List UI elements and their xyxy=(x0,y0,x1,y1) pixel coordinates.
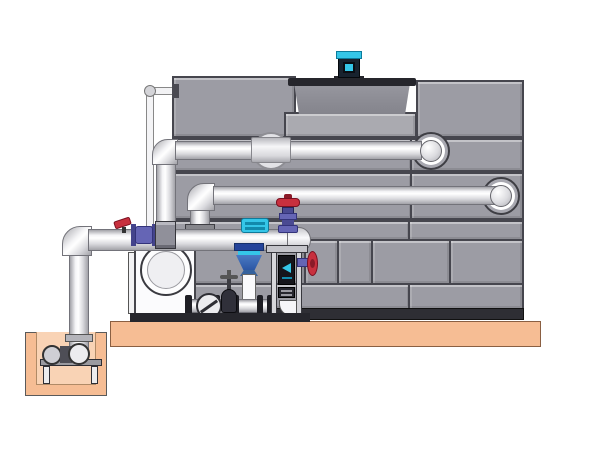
pump-suction-eye-inner xyxy=(147,251,185,289)
fan-motor-cap xyxy=(336,51,362,59)
diffuser-flange xyxy=(234,243,264,251)
inline-coupling xyxy=(251,137,291,163)
flow-switch-stripe xyxy=(245,222,265,225)
upper-pipe-downcomer xyxy=(156,160,176,228)
pit-stand-leg-right xyxy=(91,366,98,384)
pit-elbow-ball-right xyxy=(68,343,90,365)
lower-panel-line xyxy=(281,290,292,292)
globe-valve-body-upper xyxy=(279,213,297,220)
side-valve-hub xyxy=(310,259,315,268)
lower-panel-line xyxy=(281,294,292,296)
drain-valve-stem xyxy=(122,227,126,233)
panel-indicator-bar xyxy=(282,277,292,279)
tower-brick-row3-right xyxy=(408,283,524,310)
mid-return-pipe xyxy=(213,186,503,205)
riser-pit-collar xyxy=(65,334,93,342)
overflow-elbow-ball xyxy=(144,85,156,97)
cooling-tower-system-illustration xyxy=(0,0,600,450)
fan-deck-ledge xyxy=(284,112,417,138)
globe-valve-handwheel xyxy=(276,198,300,207)
mid-pipe-elbow xyxy=(187,183,215,211)
tower-panel-top-left xyxy=(172,76,296,138)
tower-brick-c xyxy=(337,239,373,285)
tower-brick-row1-right xyxy=(408,220,524,241)
tower-brick-d xyxy=(371,239,451,285)
upper-return-pipe xyxy=(175,141,422,160)
frame-top-plate xyxy=(266,245,308,253)
flow-switch-stripe xyxy=(245,227,265,230)
fan-motor-window xyxy=(343,62,355,73)
frame-post-left xyxy=(271,250,277,318)
frame-lower-panel xyxy=(278,287,295,298)
fan-shroud xyxy=(293,84,411,114)
platform-slab xyxy=(110,321,541,347)
frame-control-panel xyxy=(278,255,295,285)
panel-arrow-icon xyxy=(282,263,291,273)
sight-glass-slash xyxy=(200,300,218,314)
riser-collar-flange xyxy=(155,221,176,249)
tower-panel-top-right xyxy=(416,80,524,138)
flow-switch xyxy=(241,218,269,233)
mid-nozzle-dome xyxy=(490,185,512,207)
tower-brick-e xyxy=(449,239,524,285)
pit-stand-leg-left xyxy=(43,366,50,384)
butterfly-valve-body xyxy=(135,226,153,244)
skid-base-rail xyxy=(130,313,310,322)
upper-nozzle-dome xyxy=(420,140,442,162)
gate-valve-body xyxy=(221,289,237,313)
pit-elbow-ball-left xyxy=(42,345,62,365)
globe-valve-body-lower xyxy=(278,225,298,233)
overflow-stub-cap xyxy=(172,84,179,98)
